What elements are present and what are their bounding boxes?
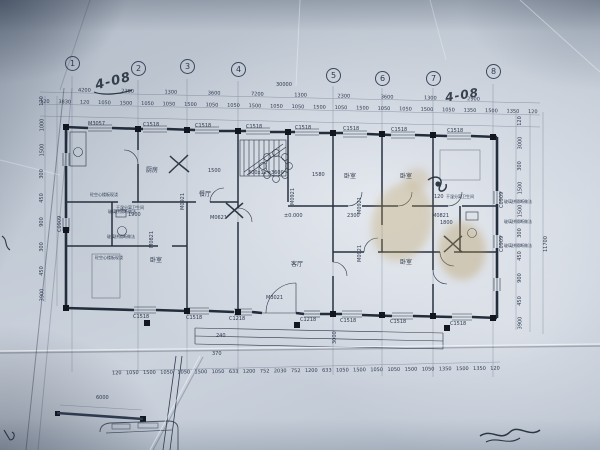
porch-step-dim: 370 xyxy=(212,352,222,358)
overall-dim-top: 30000 xyxy=(276,83,292,89)
axis-bubble-4: 4 xyxy=(231,62,246,77)
dim-value: 3830 xyxy=(58,99,71,105)
door-label: M0921 xyxy=(291,188,297,205)
window-label-side: C0909 xyxy=(58,216,64,232)
axis-bubble-5: 5 xyxy=(326,68,341,83)
window-label-bottom: C1518 xyxy=(133,315,149,321)
dim-value: 1500 xyxy=(39,143,45,156)
dim-value: 900 xyxy=(39,217,45,227)
dim-value: 1050 xyxy=(335,105,348,111)
dim-value: 120 xyxy=(39,96,45,106)
dim-value: 1050 xyxy=(206,102,219,108)
stair-note: 300x12=3600 xyxy=(248,171,284,177)
dim-value: 1050 xyxy=(98,100,111,106)
floor-plan-drawing xyxy=(0,0,600,450)
dim-value: 1050 xyxy=(270,104,283,110)
dim-value: 1500 xyxy=(143,370,156,376)
dim-value: 120 xyxy=(528,109,538,115)
dim-value: 1050 xyxy=(177,369,190,375)
dim-value: 1500 xyxy=(249,103,262,109)
dim-value: 120 xyxy=(490,366,500,372)
note-right: 玻璃拼隔断做法 xyxy=(504,244,532,248)
dim-value: 2900 xyxy=(467,96,480,102)
overall-dim-right: 11700 xyxy=(544,236,550,252)
dim-value: 1500 xyxy=(405,367,418,373)
axis-bubble-1: 1 xyxy=(65,56,80,71)
door-label-entrance: M3021 xyxy=(266,296,283,302)
dim-value: 1500 xyxy=(517,182,523,195)
room-label-bedroom: 卧室 xyxy=(400,260,412,267)
dim-value: 1050 xyxy=(141,101,154,107)
room-label-bathroom: 干湿分离卫生间 xyxy=(446,195,474,199)
door-label: M0921 xyxy=(358,245,364,262)
dim-value: 120 xyxy=(112,370,122,376)
dim-value: 3900 xyxy=(39,289,45,302)
porch-width-dim: 240 xyxy=(216,334,226,340)
dim-value: 2030 xyxy=(274,368,287,374)
dining-width-dim: 2300 xyxy=(347,214,360,220)
paper-stain xyxy=(438,222,486,280)
dim-value: 2300 xyxy=(337,93,350,99)
dim-value: 1050 xyxy=(212,369,225,375)
window-label-top: C1518 xyxy=(447,129,463,135)
photographed-floor-plan: 1 2 3 4 5 6 7 8 4-08 4-08 30000 42002300… xyxy=(0,0,600,450)
dim-value: 1050 xyxy=(378,106,391,112)
window-label-bottom: C1518 xyxy=(390,320,406,326)
dim-value: 3600 xyxy=(208,90,221,96)
dim-value: 300 xyxy=(39,242,45,252)
door-label-top: M3057 xyxy=(88,122,105,128)
dim-value: 1500 xyxy=(517,204,523,217)
dim-value: 3900 xyxy=(517,317,523,330)
dim-value: 450 xyxy=(39,266,45,276)
room-label-kitchen: 厨房 xyxy=(146,168,158,175)
dim-value: 1500 xyxy=(120,100,133,106)
note-left: 玻璃拼隔断做法 xyxy=(108,210,136,214)
dim-value: 1500 xyxy=(184,102,197,108)
dim-value: 1500 xyxy=(456,366,469,372)
door-label: M0921 xyxy=(358,197,364,214)
dim-value: 1300 xyxy=(164,89,177,95)
dim-value: 1500 xyxy=(421,107,434,113)
dim-value: 1350 xyxy=(507,109,520,115)
dim-value: 1050 xyxy=(126,370,139,376)
window-symbols xyxy=(63,125,500,320)
room-label-bedroom: 卧室 xyxy=(150,258,162,265)
window-label-bottom: C1518 xyxy=(450,322,466,328)
dim-value: 7200 xyxy=(251,91,264,97)
dim-value: 300 xyxy=(517,161,523,171)
bath-offset-dim: 120 xyxy=(434,195,444,201)
note-left: 砼空心楼板现浇 xyxy=(90,193,118,197)
dim-value: 1350 xyxy=(439,366,452,372)
window-label-top: C1518 xyxy=(391,128,407,134)
dim-value: 1350 xyxy=(464,108,477,114)
window-label-bottom: C1518 xyxy=(186,316,202,322)
paper-creases xyxy=(0,0,600,450)
window-label-top: C1518 xyxy=(246,125,262,131)
dim-value: 752 xyxy=(291,368,301,374)
note-left: 玻璃拼隔断做法 xyxy=(107,235,135,239)
axis-bubble-2: 2 xyxy=(131,61,146,76)
dim-value: 633 xyxy=(229,369,239,375)
dim-value: 1050 xyxy=(370,367,383,373)
dim-value: 1050 xyxy=(336,367,349,373)
dim-value: 1500 xyxy=(313,105,326,111)
dim-value: 1500 xyxy=(356,105,369,111)
dim-value: 300 xyxy=(39,169,45,179)
dim-value: 1050 xyxy=(442,107,455,113)
room-label-bedroom: 卧室 xyxy=(344,174,356,181)
dim-value: 1300 xyxy=(294,92,307,98)
dim-value: 1050 xyxy=(163,101,176,107)
dim-value: 1200 xyxy=(305,368,318,374)
room-label-bedroom: 卧室 xyxy=(400,174,412,181)
axis-bubble-7: 7 xyxy=(426,71,441,86)
hall-width-dim: 1500 xyxy=(208,169,221,175)
door-label: M0821 xyxy=(432,214,449,220)
dim-value: 1050 xyxy=(292,104,305,110)
note-right: 玻璃拼隔断做法 xyxy=(504,220,532,224)
window-label-bottom: C1518 xyxy=(340,319,356,325)
door-label: M0921 xyxy=(181,193,187,210)
room-label-living: 客厅 xyxy=(291,262,303,269)
dim-value: 450 xyxy=(517,251,523,261)
dim-value: 1000 xyxy=(39,119,45,132)
dim-value: 1200 xyxy=(243,369,256,375)
dim-value: 3000 xyxy=(517,137,523,150)
dim-value: 2300 xyxy=(121,88,134,94)
column-blocks xyxy=(55,124,496,422)
note-right: 玻璃拼隔断做法 xyxy=(504,200,532,204)
dim-value: 450 xyxy=(517,296,523,306)
axis-bubble-6: 6 xyxy=(375,71,390,86)
dim-value: 633 xyxy=(322,368,332,374)
window-label-top: C1518 xyxy=(143,123,159,129)
dim-value: 300 xyxy=(517,228,523,238)
dim-value: 450 xyxy=(39,193,45,203)
dim-value: 1050 xyxy=(399,106,412,112)
dim-value: 1350 xyxy=(473,366,486,372)
dim-value: 120 xyxy=(517,116,523,126)
dim-value: 1500 xyxy=(353,367,366,373)
garage-dim: 6000 xyxy=(96,396,109,402)
dim-value: 752 xyxy=(260,368,270,374)
dim-value: 1050 xyxy=(422,366,435,372)
dim-value: 3600 xyxy=(381,94,394,100)
bath-dim: 1800 xyxy=(440,221,453,227)
door-label: M0621 xyxy=(210,216,227,222)
dim-value: 1500 xyxy=(485,108,498,114)
axis-bubble-8: 8 xyxy=(486,64,501,79)
dim-value: 1050 xyxy=(227,103,240,109)
dim-value: 1500 xyxy=(194,369,207,375)
window-label-bottom: C1218 xyxy=(300,318,316,324)
note-left: 砼空心楼板现浇 xyxy=(95,256,123,260)
room-label-dining: 餐厅 xyxy=(199,192,211,199)
stair-width-dim: 1580 xyxy=(312,173,325,179)
floor-level-mark: ±0.000 xyxy=(284,214,303,220)
dim-col-left: 120100015003004509003004503900 xyxy=(36,98,48,298)
window-label-top: C1518 xyxy=(343,127,359,133)
dim-value: 4200 xyxy=(78,87,91,93)
dim-value: 120 xyxy=(80,100,90,106)
dim-value: 900 xyxy=(517,273,523,283)
dim-value: 1050 xyxy=(387,367,400,373)
axis-bubble-3: 3 xyxy=(180,59,195,74)
porch-depth-dim: 3000 xyxy=(333,331,339,344)
window-label-bottom: C1218 xyxy=(229,317,245,323)
window-label-top: C1518 xyxy=(195,124,211,130)
dim-value: 1300 xyxy=(424,95,437,101)
door-label: M0821 xyxy=(150,231,156,248)
window-label-top: C1518 xyxy=(295,126,311,132)
dim-value: 1050 xyxy=(160,370,173,376)
